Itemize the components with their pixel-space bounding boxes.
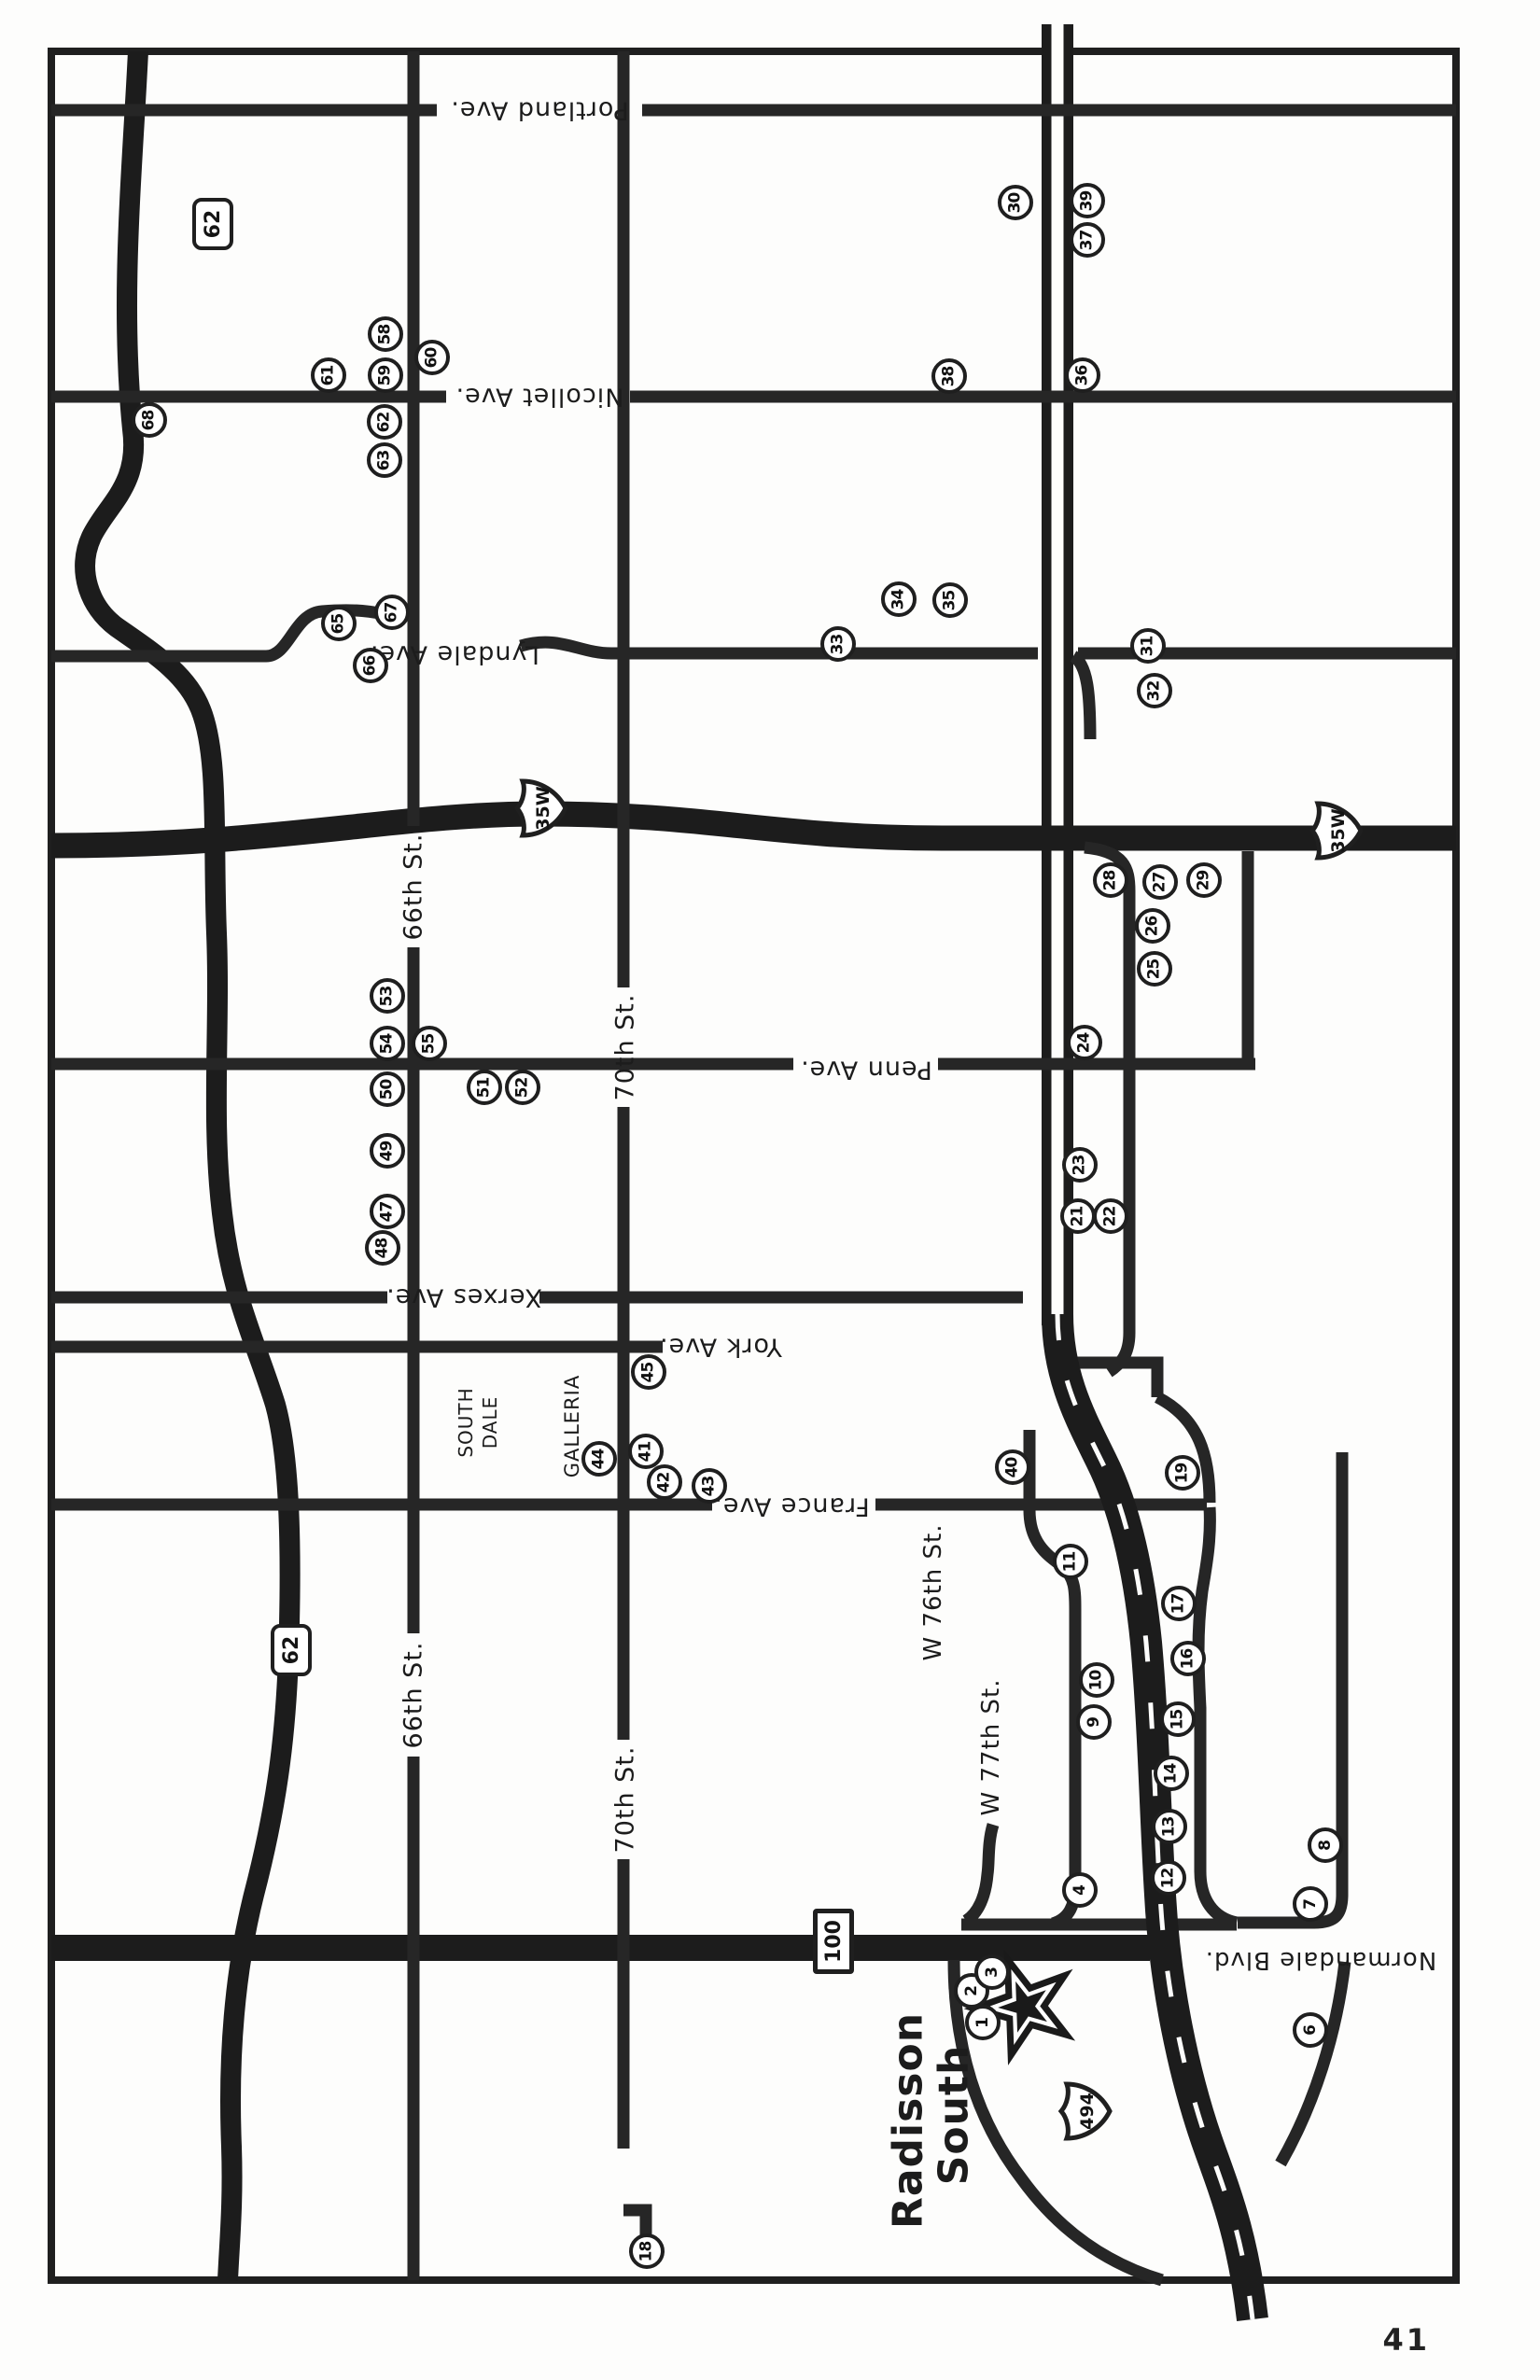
- location-marker-1: 1: [965, 2005, 1001, 2040]
- marker-number: 40: [1004, 1457, 1020, 1477]
- location-marker-42: 42: [647, 1464, 682, 1500]
- location-marker-28: 28: [1093, 862, 1128, 898]
- location-marker-4: 4: [1062, 1872, 1098, 1908]
- location-marker-6: 6: [1293, 2012, 1328, 2048]
- marker-number: 49: [379, 1141, 395, 1161]
- shield-number: 62: [280, 1636, 303, 1665]
- map-label-lyndale-ave: Lyndale Ave.: [370, 640, 539, 669]
- marker-number: 51: [476, 1077, 492, 1098]
- marker-number: 39: [1079, 190, 1095, 211]
- location-marker-24: 24: [1067, 1025, 1102, 1060]
- location-marker-32: 32: [1137, 673, 1172, 708]
- location-marker-50: 50: [370, 1071, 405, 1107]
- shield-number: 494: [1077, 2093, 1098, 2130]
- marker-number: 23: [1071, 1155, 1087, 1175]
- location-marker-48: 48: [365, 1230, 400, 1266]
- map-label-south: SOUTH: [455, 1387, 477, 1457]
- location-marker-51: 51: [467, 1070, 502, 1105]
- street-map: Portland Ave.Nicollet Ave.Lyndale Ave.Pe…: [0, 0, 1540, 2380]
- location-marker-61: 61: [311, 357, 346, 393]
- location-marker-65: 65: [321, 606, 357, 641]
- map-label-70th-st: 70th St.: [611, 994, 640, 1101]
- marker-number: 52: [514, 1077, 530, 1098]
- map-label-dale: DALE: [479, 1396, 501, 1449]
- marker-number: 68: [141, 410, 157, 430]
- marker-number: 28: [1102, 870, 1118, 890]
- marker-number: 66: [362, 655, 378, 676]
- location-marker-53: 53: [370, 978, 405, 1014]
- location-marker-43: 43: [692, 1468, 727, 1504]
- map-label-nicollet-ave: Nicollet Ave.: [455, 383, 624, 412]
- marker-number: 62: [376, 412, 392, 432]
- marker-number: 24: [1076, 1032, 1092, 1053]
- marker-number: 45: [640, 1362, 656, 1382]
- marker-number: 31: [1140, 636, 1155, 656]
- map-label-70th-st: 70th St.: [611, 1746, 640, 1854]
- marker-number: 25: [1146, 959, 1162, 979]
- highway-shield-35w: 35W: [1309, 800, 1364, 861]
- location-marker-45: 45: [631, 1354, 666, 1390]
- location-marker-30: 30: [998, 185, 1033, 220]
- marker-number: 41: [637, 1441, 653, 1462]
- marker-number: 53: [379, 986, 395, 1006]
- marker-number: 58: [377, 324, 393, 344]
- location-marker-63: 63: [367, 442, 402, 478]
- marker-number: 8: [1318, 1841, 1334, 1851]
- map-label-xerxes-ave: Xerxes Ave.: [385, 1283, 542, 1312]
- marker-number: 22: [1102, 1206, 1118, 1226]
- location-marker-36: 36: [1065, 357, 1100, 393]
- highway-shield-494: 494: [1058, 2080, 1113, 2142]
- marker-number: 35: [942, 590, 958, 610]
- location-marker-67: 67: [374, 595, 410, 630]
- location-marker-68: 68: [132, 402, 167, 438]
- location-marker-18: 18: [629, 2233, 665, 2269]
- marker-number: 37: [1079, 230, 1095, 250]
- marker-number: 63: [376, 450, 392, 470]
- location-marker-17: 17: [1161, 1586, 1197, 1621]
- marker-number: 30: [1007, 192, 1023, 213]
- marker-number: 9: [1086, 1717, 1102, 1728]
- location-marker-10: 10: [1079, 1662, 1114, 1698]
- marker-number: 50: [379, 1079, 395, 1099]
- location-marker-41: 41: [628, 1434, 664, 1469]
- location-marker-54: 54: [370, 1026, 405, 1061]
- location-marker-11: 11: [1053, 1544, 1088, 1579]
- location-marker-23: 23: [1062, 1147, 1098, 1183]
- location-marker-55: 55: [412, 1026, 447, 1061]
- marker-number: 13: [1161, 1816, 1177, 1837]
- marker-number: 32: [1146, 680, 1162, 701]
- location-marker-9: 9: [1076, 1704, 1112, 1740]
- location-marker-27: 27: [1142, 864, 1178, 900]
- marker-number: 15: [1169, 1709, 1185, 1729]
- shield-number: 100: [822, 1920, 846, 1963]
- shield-number: 35W: [1328, 808, 1349, 852]
- marker-number: 14: [1163, 1763, 1179, 1784]
- location-marker-26: 26: [1135, 908, 1170, 944]
- location-marker-62: 62: [367, 404, 402, 440]
- marker-number: 33: [830, 634, 846, 654]
- map-label-galleria: GALLERIA: [561, 1375, 583, 1477]
- location-marker-13: 13: [1152, 1809, 1187, 1844]
- location-marker-14: 14: [1154, 1756, 1189, 1791]
- map-label-penn-ave: Penn Ave.: [800, 1056, 932, 1085]
- location-marker-19: 19: [1165, 1455, 1200, 1491]
- shield-number: 35W: [533, 786, 553, 830]
- location-marker-15: 15: [1160, 1701, 1196, 1737]
- marker-number: 67: [384, 602, 399, 623]
- marker-number: 18: [638, 2241, 654, 2261]
- marker-number: 36: [1074, 365, 1090, 385]
- marker-number: 38: [941, 366, 957, 386]
- location-marker-31: 31: [1130, 628, 1166, 664]
- location-marker-58: 58: [368, 316, 403, 352]
- map-label-normandale-blvd: Normandale Blvd.: [1205, 1946, 1436, 1974]
- location-marker-8: 8: [1308, 1827, 1343, 1863]
- marker-number: 11: [1062, 1551, 1078, 1572]
- marker-number: 43: [701, 1476, 717, 1496]
- marker-number: 34: [890, 589, 906, 609]
- page-number: 41: [1382, 2322, 1430, 2358]
- marker-number: 19: [1174, 1463, 1190, 1483]
- location-marker-59: 59: [368, 357, 403, 393]
- marker-number: 42: [656, 1472, 672, 1492]
- marker-number: 3: [985, 1967, 1001, 1978]
- location-marker-39: 39: [1070, 183, 1105, 218]
- map-label-w-76th-st: W 76th St.: [919, 1524, 947, 1661]
- marker-number: 61: [320, 365, 336, 385]
- highway-shield-62: 62: [271, 1624, 312, 1676]
- location-marker-3: 3: [974, 1954, 1010, 1990]
- map-label-w-77th-st: W 77th St.: [977, 1679, 1005, 1816]
- map-page: Portland Ave.Nicollet Ave.Lyndale Ave.Pe…: [0, 0, 1540, 2380]
- map-label-66th-st: 66th St.: [399, 833, 428, 941]
- location-marker-60: 60: [414, 340, 450, 375]
- marker-number: 54: [379, 1033, 395, 1054]
- location-marker-22: 22: [1093, 1198, 1128, 1234]
- map-label-france-ave: France Ave.: [713, 1492, 869, 1521]
- marker-number: 47: [379, 1201, 395, 1222]
- marker-number: 29: [1196, 870, 1211, 890]
- marker-number: 55: [421, 1033, 437, 1054]
- location-marker-40: 40: [995, 1449, 1030, 1485]
- marker-number: 6: [1303, 2025, 1319, 2036]
- marker-number: 1: [975, 2018, 991, 2028]
- highway-shield-100: 100: [813, 1909, 854, 1974]
- marker-number: 16: [1180, 1648, 1196, 1669]
- marker-number: 7: [1303, 1899, 1319, 1910]
- location-marker-29: 29: [1186, 862, 1222, 898]
- location-marker-16: 16: [1170, 1641, 1206, 1676]
- location-marker-25: 25: [1137, 951, 1172, 987]
- location-marker-34: 34: [881, 581, 917, 617]
- marker-number: 2: [964, 1986, 980, 1996]
- shield-number: 62: [202, 210, 225, 239]
- location-marker-44: 44: [581, 1441, 617, 1477]
- location-marker-21: 21: [1060, 1198, 1096, 1234]
- marker-number: 60: [424, 347, 440, 368]
- map-label-portland-ave: Portland Ave.: [450, 96, 628, 125]
- marker-number: 59: [377, 365, 393, 385]
- location-marker-66: 66: [353, 648, 388, 683]
- map-label-radisson: Radisson: [885, 2012, 932, 2229]
- marker-number: 4: [1072, 1885, 1088, 1896]
- marker-number: 10: [1088, 1670, 1104, 1690]
- map-label-york-ave: York Ave.: [659, 1333, 782, 1362]
- marker-number: 26: [1144, 916, 1160, 936]
- interstate-35w-road: [51, 814, 1456, 846]
- location-marker-33: 33: [820, 626, 856, 662]
- marker-number: 21: [1070, 1206, 1085, 1226]
- location-marker-37: 37: [1070, 222, 1105, 258]
- location-marker-38: 38: [931, 358, 967, 394]
- marker-number: 12: [1160, 1868, 1176, 1888]
- marker-number: 27: [1152, 872, 1168, 892]
- location-marker-49: 49: [370, 1133, 405, 1169]
- location-marker-52: 52: [505, 1070, 540, 1105]
- map-label-66th-st: 66th St.: [399, 1642, 428, 1749]
- marker-number: 48: [374, 1238, 390, 1258]
- location-marker-35: 35: [932, 582, 968, 618]
- location-marker-12: 12: [1151, 1860, 1186, 1896]
- location-marker-47: 47: [370, 1194, 405, 1229]
- highway-shield-35w: 35W: [514, 777, 568, 839]
- marker-number: 65: [330, 613, 346, 634]
- highway-shield-62: 62: [192, 198, 233, 250]
- marker-number: 17: [1170, 1593, 1186, 1614]
- marker-number: 44: [591, 1449, 607, 1469]
- location-marker-7: 7: [1293, 1886, 1328, 1922]
